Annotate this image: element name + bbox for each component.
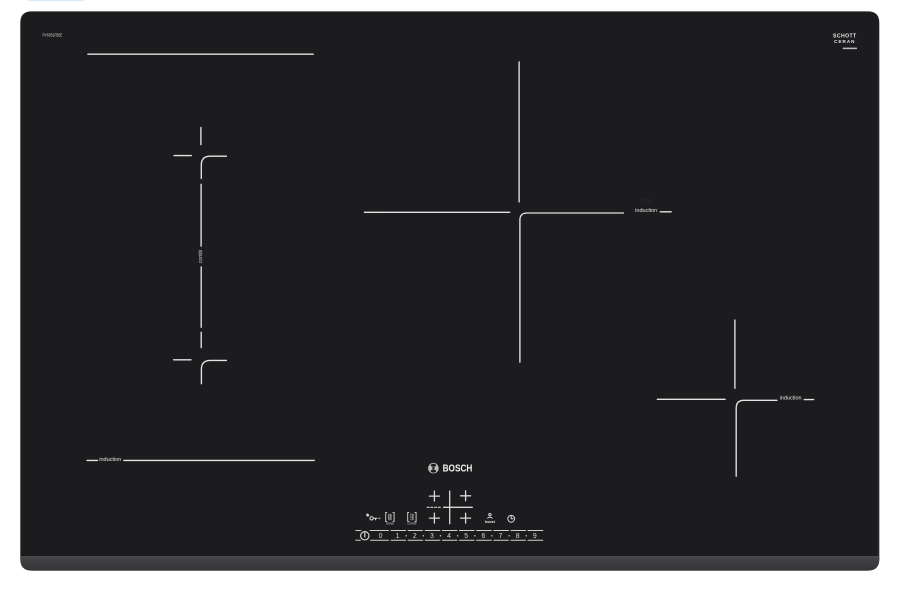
svg-text:3: 3: [430, 533, 434, 540]
svg-text:induction: induction: [780, 395, 802, 401]
svg-text:induction: induction: [99, 457, 121, 463]
svg-text:PVS851FB5E: PVS851FB5E: [43, 33, 63, 38]
svg-text:combi: combi: [198, 250, 204, 263]
svg-text:5: 5: [464, 533, 468, 540]
svg-text:1: 1: [396, 533, 400, 540]
svg-text:0: 0: [379, 533, 383, 540]
svg-text:CERAN: CERAN: [834, 39, 855, 44]
svg-text:2: 2: [413, 533, 417, 540]
svg-text:9: 9: [533, 533, 537, 540]
svg-text:boost: boost: [485, 520, 496, 524]
svg-text:8: 8: [516, 533, 520, 540]
svg-text:88: 88: [641, 197, 652, 208]
svg-text:move: move: [386, 522, 394, 526]
svg-text:7: 7: [499, 533, 503, 540]
svg-text:4: 4: [447, 533, 451, 540]
svg-text:combi: combi: [407, 522, 416, 526]
svg-text:induction: induction: [635, 208, 657, 214]
svg-text:BOSCH: BOSCH: [443, 464, 473, 475]
svg-text:6: 6: [481, 533, 485, 540]
